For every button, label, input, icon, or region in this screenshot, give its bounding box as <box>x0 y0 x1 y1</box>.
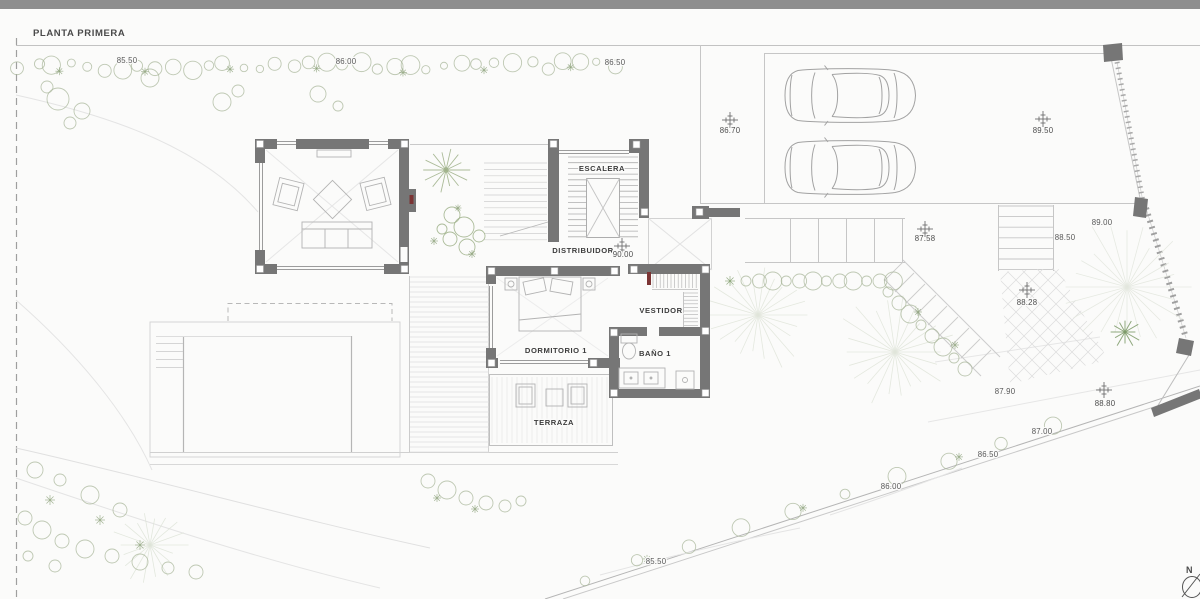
contour-level-label: 86.00 <box>336 57 357 66</box>
contour-level-label: 86.00 <box>881 482 902 491</box>
spot-level: 88.28 <box>1017 282 1038 307</box>
property-line-south <box>545 386 1200 599</box>
room-label-vestidor: VESTIDOR <box>639 306 682 315</box>
floor-plan-canvas: ESCALERADISTRIBUIDORDORMITORIO 1VESTIDOR… <box>0 0 1200 599</box>
spot-level: 87.58 <box>915 221 936 243</box>
wall-block <box>1103 43 1123 62</box>
room-label-escalera: ESCALERA <box>579 164 625 173</box>
spot-level-label: 88.80 <box>1095 399 1116 408</box>
sofa <box>302 222 372 248</box>
level-marker-icon <box>1096 382 1112 398</box>
generated-hatching <box>410 157 1200 452</box>
contour-line <box>16 448 430 548</box>
spot-level-label: 88.28 <box>1017 298 1038 307</box>
door-leaf <box>647 272 651 285</box>
pillow <box>550 278 573 294</box>
furniture-layer <box>273 150 694 407</box>
sideboard <box>317 150 351 157</box>
parking-edge <box>1110 53 1141 203</box>
stair-break-line <box>500 222 548 236</box>
wall-block <box>1176 338 1194 356</box>
spot-level-label: 86.70 <box>720 126 741 135</box>
window-top-bar <box>0 0 1200 9</box>
contour-line <box>16 300 152 470</box>
pool-outline <box>150 322 400 457</box>
contour-level-label: 85.50 <box>646 557 667 566</box>
car-icon <box>785 66 916 126</box>
north-label: N <box>1186 565 1193 575</box>
spot-level: 90.00 <box>613 238 634 259</box>
contour-level-label: 85.50 <box>117 56 138 65</box>
gate-wall <box>1151 389 1200 417</box>
pillow <box>523 278 546 295</box>
contour-line <box>16 478 380 588</box>
car-icon <box>785 138 916 198</box>
level-marker-icon <box>1035 111 1051 127</box>
page-title: PLANTA PRIMERA <box>33 28 125 39</box>
spot-level: 86.70 <box>720 112 741 135</box>
contour-level-label: 86.50 <box>978 450 999 459</box>
room-label-terraza: TERRAZA <box>534 418 574 427</box>
spot-level: 89.50 <box>1033 111 1054 135</box>
lower-floor-dashed-outline <box>228 304 392 322</box>
hardscape <box>150 43 1200 465</box>
contour-line <box>830 468 962 515</box>
building-walls <box>255 139 740 398</box>
shower <box>676 371 694 389</box>
door-leaf <box>410 195 414 204</box>
terrace-table <box>546 389 563 406</box>
contour-level-label: 89.00 <box>1092 218 1113 227</box>
property-line-south-inner <box>563 392 1200 599</box>
contour-level-label: 86.50 <box>605 58 626 67</box>
spot-level-label: 89.50 <box>1033 126 1054 135</box>
contour-line <box>16 95 258 212</box>
terrace-outline <box>490 375 613 446</box>
armchair <box>273 178 304 211</box>
room-label-bano-1: BAÑO 1 <box>639 349 671 358</box>
spot-level-label: 90.00 <box>613 250 634 259</box>
wall-block <box>1133 197 1148 218</box>
labels-layer: ESCALERADISTRIBUIDORDORMITORIO 1VESTIDOR… <box>117 56 1116 566</box>
coffee-table <box>313 180 351 218</box>
armchair <box>360 177 391 210</box>
north-arrow-icon: N <box>1182 565 1200 598</box>
spot-level-label: 87.58 <box>915 234 936 243</box>
contour-level-label: 88.50 <box>1055 233 1076 242</box>
contour-level-label: 87.90 <box>995 387 1016 396</box>
room-label-dormitorio-1: DORMITORIO 1 <box>525 346 587 355</box>
contour-level-label: 87.00 <box>1032 427 1053 436</box>
spot-level: 88.80 <box>1095 382 1116 408</box>
vegetation-layer <box>11 53 1192 586</box>
room-label-distribuidor: DISTRIBUIDOR <box>552 246 613 255</box>
contour-line <box>600 528 800 575</box>
